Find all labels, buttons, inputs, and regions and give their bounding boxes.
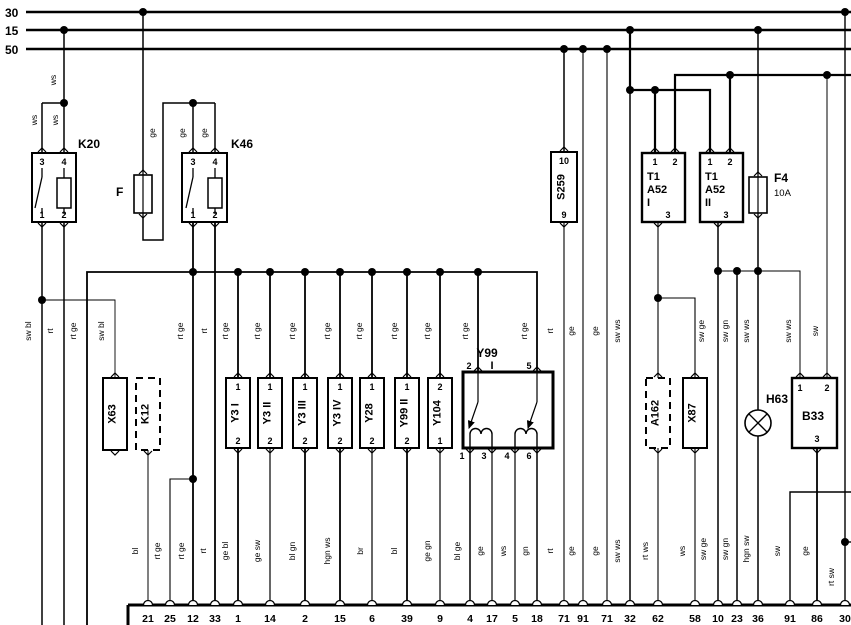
terminal-arrow — [654, 601, 663, 606]
wire-color-label: sw ws — [612, 539, 622, 562]
terminal-number: 15 — [334, 613, 346, 625]
wire-color-label: sw ws — [612, 319, 622, 342]
component-label: X87 — [687, 403, 699, 423]
pin-number: 2 — [466, 361, 471, 371]
wire-color-label: sw ge — [698, 538, 708, 560]
terminal-number: 33 — [209, 613, 221, 625]
junction-dot — [726, 71, 734, 79]
junction-dot — [603, 45, 611, 53]
pin-number: 1 — [267, 382, 272, 392]
terminal-arrow — [166, 601, 175, 606]
wire-color-label: ge — [566, 326, 576, 336]
component-label: Y99 — [476, 346, 498, 360]
wire — [675, 75, 851, 153]
component-label: Y99 II — [399, 399, 411, 428]
terminal-number: 30 — [839, 613, 851, 625]
wire-color-label: rt — [198, 548, 208, 554]
terminal-arrow — [189, 601, 198, 606]
pin-number: 10 — [559, 156, 569, 166]
component-label: Y3 II — [262, 402, 274, 425]
junction-dot — [266, 268, 274, 276]
wire-color-label: rt ge — [322, 322, 332, 339]
terminal-arrow — [626, 601, 635, 606]
wire-color-label: rt ge — [176, 542, 186, 559]
pin-number: 2 — [727, 157, 732, 167]
pin-number: 4 — [504, 451, 509, 461]
terminal-number: 12 — [187, 613, 199, 625]
terminal-number: 86 — [811, 613, 823, 625]
pin-number: 9 — [561, 210, 566, 220]
junction-dot — [301, 268, 309, 276]
terminal-arrow — [234, 601, 243, 606]
component-label: K46 — [231, 137, 253, 151]
terminal-number: 1 — [235, 613, 241, 625]
junction-dot — [474, 268, 482, 276]
junction-dot — [234, 268, 242, 276]
pin-number: 2 — [824, 383, 829, 393]
terminal-arrow — [511, 601, 520, 606]
wire-color-label: sw gn — [720, 538, 730, 560]
junction-dot — [436, 268, 444, 276]
terminal-number: 91 — [784, 613, 796, 625]
junction-dot — [654, 294, 662, 302]
bus-label: 15 — [5, 24, 19, 38]
component-label: F — [116, 185, 123, 199]
junction-dot — [60, 26, 68, 34]
terminal-number: 14 — [264, 613, 276, 625]
terminal-arrow — [301, 601, 310, 606]
wire-color-label: hgn sw — [741, 535, 751, 563]
junction-dot — [823, 71, 831, 79]
terminal-arrow — [336, 601, 345, 606]
component-label: I — [647, 197, 650, 209]
pin-number: 2 — [235, 436, 240, 446]
component-label: T1 — [647, 171, 660, 183]
junction-dot — [754, 267, 762, 275]
junction-dot — [651, 86, 659, 94]
wire — [658, 298, 695, 378]
junction-dot — [38, 296, 46, 304]
wire-color-label: rt ws — [640, 542, 650, 560]
wire-color-label: ws — [50, 115, 60, 126]
wire-color-label: ge — [475, 546, 485, 556]
wire-color-label: rt — [545, 548, 555, 554]
terminal-number: 32 — [624, 613, 636, 625]
wire-color-label: rt ge — [389, 322, 399, 339]
junction-dot — [189, 268, 197, 276]
terminal-number: 4 — [467, 613, 473, 625]
wire-color-label: ws — [498, 546, 508, 557]
terminal-number: 2 — [302, 613, 308, 625]
terminal-number: 6 — [369, 613, 375, 625]
wire-color-label: ge — [590, 326, 600, 336]
junction-dot — [403, 268, 411, 276]
component-label: A52 — [647, 184, 667, 196]
pin-number: 4 — [61, 157, 66, 167]
terminal-number: 9 — [437, 613, 443, 625]
terminal-arrow — [436, 601, 445, 606]
component-label: B33 — [802, 409, 824, 423]
relay-coil-symbol — [57, 178, 71, 208]
terminal-number: 58 — [689, 613, 701, 625]
pin-number: 3 — [39, 157, 44, 167]
wire-color-label: rt ge — [68, 322, 78, 339]
wire-color-label: sw ws — [741, 319, 751, 342]
junction-dot — [139, 8, 147, 16]
wire-color-label: rt ge — [220, 322, 230, 339]
fuse-rating-label: 10A — [774, 188, 792, 199]
wire-color-label: rt — [199, 328, 209, 334]
junction-dot — [368, 268, 376, 276]
pin-number: 1 — [369, 382, 374, 392]
component-label: A52 — [705, 184, 725, 196]
pin-number: 2 — [404, 436, 409, 446]
wire-color-label: rt ge — [460, 322, 470, 339]
terminal-number: 10 — [712, 613, 724, 625]
wire-color-label: bl — [130, 548, 140, 555]
wire-color-label: sw — [810, 325, 820, 336]
wire-color-label: gn — [520, 546, 530, 556]
component-label: H63 — [766, 392, 788, 406]
component-label: K12 — [140, 404, 152, 424]
wire — [170, 479, 193, 605]
pin-number: 3 — [481, 451, 486, 461]
terminal-arrow — [403, 601, 412, 606]
pin-number: 1 — [652, 157, 657, 167]
terminal-arrow — [144, 601, 153, 606]
wire-color-label: hgn ws — [322, 538, 332, 565]
wire-color-label: bl ge — [452, 542, 462, 561]
wire-color-label: ws — [48, 75, 58, 86]
junction-dot — [754, 26, 762, 34]
wire-color-label: ge — [800, 546, 810, 556]
wire-color-label: bl gn — [287, 542, 297, 561]
component-label: S259 — [556, 174, 568, 200]
terminal-arrow — [813, 601, 822, 606]
pin-number: 1 — [302, 382, 307, 392]
wire-color-label: rt ge — [252, 322, 262, 339]
terminal-arrow — [754, 601, 763, 606]
terminal-arrow — [691, 601, 700, 606]
junction-dot — [560, 45, 568, 53]
pin-number: 2 — [672, 157, 677, 167]
terminal-arrow — [786, 601, 795, 606]
junction-dot — [714, 267, 722, 275]
terminal-number: 17 — [486, 613, 498, 625]
terminal-number: 36 — [752, 613, 764, 625]
terminal-arrow — [488, 601, 497, 606]
terminal-arrow — [533, 601, 542, 606]
terminal-arrow — [266, 601, 275, 606]
pin-number: 2 — [267, 436, 272, 446]
wire-color-label: rt — [45, 328, 55, 334]
wire-color-label: bl — [389, 548, 399, 555]
component-label: F4 — [774, 171, 788, 185]
terminal-arrow — [733, 601, 742, 606]
pin-number: 2 — [369, 436, 374, 446]
junction-dot — [841, 8, 849, 16]
wire-color-label: ge — [199, 128, 209, 138]
junction-dot — [60, 99, 68, 107]
pin-number: 1 — [235, 382, 240, 392]
pin-number: 6 — [526, 451, 531, 461]
terminal-number: 23 — [731, 613, 743, 625]
wire-color-label: rt ge — [175, 322, 185, 339]
pin-number: 3 — [814, 434, 819, 444]
wire-color-label: rt ge — [287, 322, 297, 339]
component-label: Y28 — [364, 403, 376, 423]
component-label: II — [705, 197, 711, 209]
terminal-arrow — [714, 601, 723, 606]
terminal-number: 71 — [601, 613, 613, 625]
terminal-number: 18 — [531, 613, 543, 625]
wire-color-label: ws — [29, 115, 39, 126]
terminal-number: 62 — [652, 613, 664, 625]
pin-number: 1 — [797, 383, 802, 393]
pin-number: 1 — [707, 157, 712, 167]
component-label: I — [490, 360, 493, 372]
pin-number: 1 — [437, 436, 442, 446]
terminal-arrow — [841, 601, 850, 606]
wire-color-label: rt ge — [422, 322, 432, 339]
junction-dot — [626, 26, 634, 34]
pin-number: 3 — [190, 157, 195, 167]
wire-color-label: rt ge — [152, 542, 162, 559]
junction-dot — [626, 86, 634, 94]
wire-color-label: rt sw — [826, 567, 836, 586]
wire — [630, 90, 710, 153]
terminal-arrow — [603, 601, 612, 606]
pin-number: 1 — [337, 382, 342, 392]
terminal-arrow — [466, 601, 475, 606]
wire-color-label: sw ws — [783, 319, 793, 342]
terminal-arrow — [211, 601, 220, 606]
terminal-number: 91 — [577, 613, 589, 625]
pin-number: 3 — [665, 210, 670, 220]
terminal-number: 21 — [142, 613, 154, 625]
wiring-diagram-svg: 301550wswswsgegegesw blrtrt gesw blrt ge… — [0, 0, 851, 625]
bus-label: 50 — [5, 43, 19, 57]
terminal-arrow — [579, 601, 588, 606]
wire-color-label: ws — [677, 546, 687, 557]
pin-number: 1 — [404, 382, 409, 392]
terminal-number: 39 — [401, 613, 413, 625]
junction-dot — [733, 267, 741, 275]
pin-number: 2 — [437, 382, 442, 392]
component-label: Y104 — [432, 399, 444, 426]
wire-color-label: ge — [147, 128, 157, 138]
wire-color-label: ge — [566, 546, 576, 556]
junction-dot — [189, 475, 197, 483]
component-label: T1 — [705, 171, 718, 183]
pin-number: 4 — [212, 157, 217, 167]
terminal-number: 71 — [558, 613, 570, 625]
pin-number: 3 — [723, 210, 728, 220]
component-label: K20 — [78, 137, 100, 151]
junction-dot — [579, 45, 587, 53]
terminal-number: 5 — [512, 613, 518, 625]
junction-dot — [336, 268, 344, 276]
component-label: Y3 III — [297, 400, 309, 426]
wire-color-label: sw bl — [23, 321, 33, 340]
junction-dot — [189, 99, 197, 107]
pin-number: 1 — [459, 451, 464, 461]
pin-number: 2 — [337, 436, 342, 446]
wire-color-label: rt ge — [354, 322, 364, 339]
wire-color-label: ge — [177, 128, 187, 138]
wire-color-label: ge bl — [220, 542, 230, 561]
component-label: Y3 IV — [332, 399, 344, 427]
wire-color-label: sw bl — [96, 321, 106, 340]
component-box-Y99-I — [463, 372, 553, 448]
wire-color-label: ge — [590, 546, 600, 556]
component-label: A162 — [650, 400, 662, 426]
relay-coil-symbol — [208, 178, 222, 208]
bus-label: 30 — [5, 6, 19, 20]
component-label: Y3 I — [230, 403, 242, 423]
wire-color-label: ge gn — [422, 540, 432, 562]
junction-dot — [841, 538, 849, 546]
wire-color-label: sw ge — [696, 320, 706, 342]
wire-color-label: rt — [545, 328, 555, 334]
terminal-arrow — [368, 601, 377, 606]
terminal-number: 25 — [164, 613, 176, 625]
wire-color-label: sw gn — [720, 320, 730, 342]
pin-arrow-icon — [111, 451, 119, 455]
wire-color-label: br — [355, 547, 365, 555]
wiring-diagram-page: 301550wswswsgegegesw blrtrt gesw blrt ge… — [0, 0, 851, 625]
pin-number: 5 — [526, 361, 531, 371]
wire-color-label: rt ge — [519, 322, 529, 339]
wire-color-label: ge sw — [252, 539, 262, 562]
pin-number: 2 — [302, 436, 307, 446]
terminal-arrow — [560, 601, 569, 606]
component-label: X63 — [107, 404, 119, 424]
wire-color-label: sw — [772, 545, 782, 556]
